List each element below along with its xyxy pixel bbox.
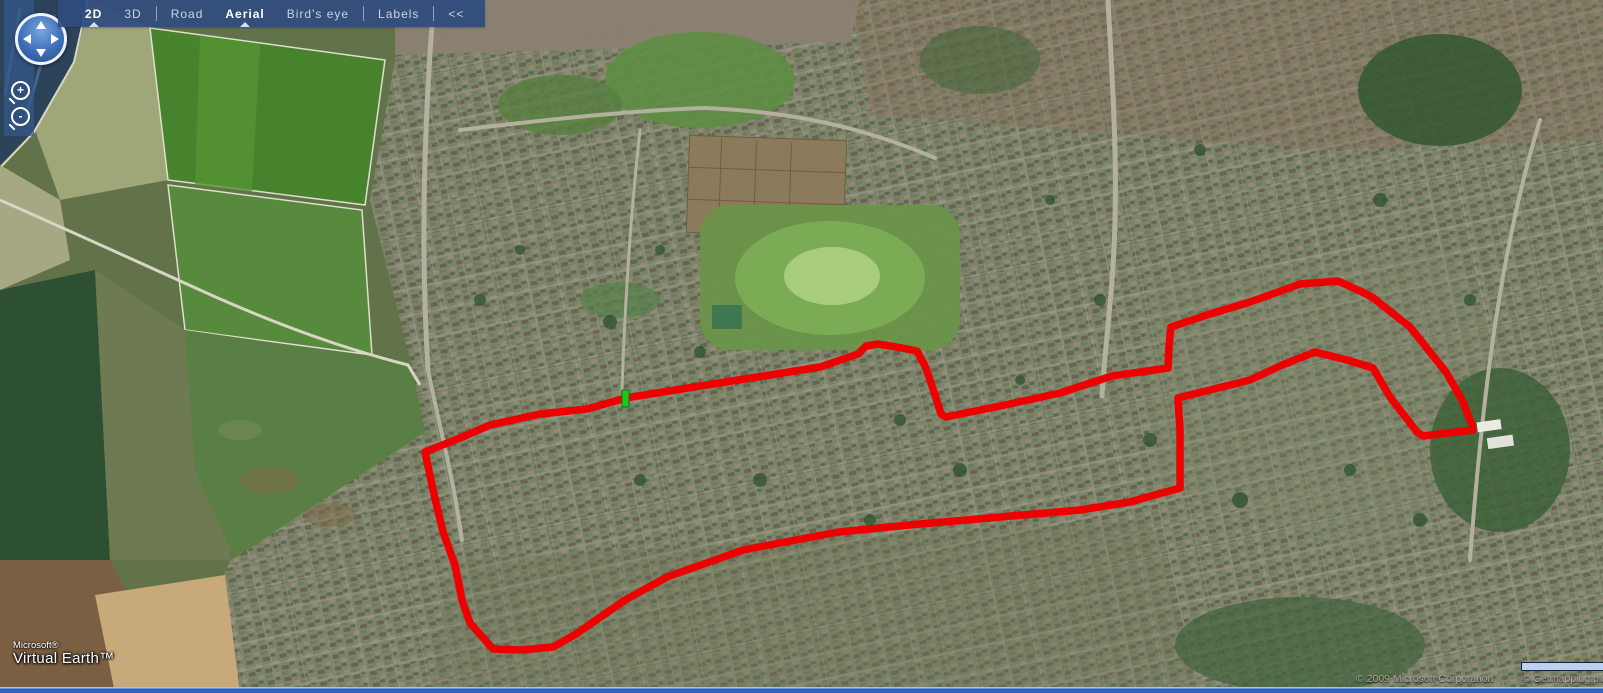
toolbar-item-labels-label: Labels	[378, 7, 419, 21]
pan-left-arrow-icon[interactable]	[23, 34, 31, 44]
toolbar-separator	[363, 6, 364, 21]
zoom-in-icon: +	[17, 83, 24, 97]
selected-caret-icon	[89, 22, 99, 27]
copyright-microsoft: © 2009 Microsoft Corporation	[1356, 673, 1493, 685]
toolbar-collapse-button[interactable]: <<	[437, 0, 475, 27]
toolbar-separator	[433, 6, 434, 21]
copyright-getmapping: © Getmapping plc	[1522, 673, 1603, 685]
zoom-in-button[interactable]: +	[11, 81, 30, 100]
toolbar-item-3d-label: 3D	[124, 7, 141, 21]
scale-bar	[1521, 662, 1603, 671]
logo-virtual-earth: Virtual Earth™	[13, 651, 114, 667]
pan-right-arrow-icon[interactable]	[51, 34, 59, 44]
route-start-marker	[622, 390, 629, 407]
window-bottom-edge	[0, 687, 1603, 693]
toolbar-item-road[interactable]: Road	[160, 0, 215, 27]
copyright-attribution: © 2009 Microsoft Corporation © Getmappin…	[1356, 673, 1603, 685]
toolbar-item-2d-label: 2D	[85, 7, 102, 21]
virtual-earth-logo: Microsoft® Virtual Earth™	[13, 641, 114, 667]
zoom-out-icon: -	[19, 109, 23, 123]
zoom-out-button[interactable]: -	[11, 107, 30, 126]
map-style-toolbar: 2D 3D Road Aerial Bird's eye Labels <<	[58, 0, 485, 27]
toolbar-separator	[156, 6, 157, 21]
toolbar-item-2d[interactable]: 2D	[74, 0, 113, 27]
toolbar-item-birds-eye[interactable]: Bird's eye	[276, 0, 360, 27]
toolbar-item-aerial[interactable]: Aerial	[214, 0, 275, 27]
collapse-chevrons-icon: <<	[448, 7, 464, 21]
toolbar-item-road-label: Road	[171, 7, 204, 21]
pan-down-arrow-icon[interactable]	[36, 49, 46, 57]
selected-caret-icon	[240, 22, 250, 27]
toolbar-item-labels[interactable]: Labels	[367, 0, 430, 27]
toolbar-item-birds-eye-label: Bird's eye	[287, 7, 349, 21]
toolbar-item-aerial-label: Aerial	[225, 7, 264, 21]
toolbar-item-3d[interactable]: 3D	[113, 0, 152, 27]
pan-up-arrow-icon[interactable]	[36, 21, 46, 29]
map-canvas[interactable]	[0, 0, 1603, 693]
